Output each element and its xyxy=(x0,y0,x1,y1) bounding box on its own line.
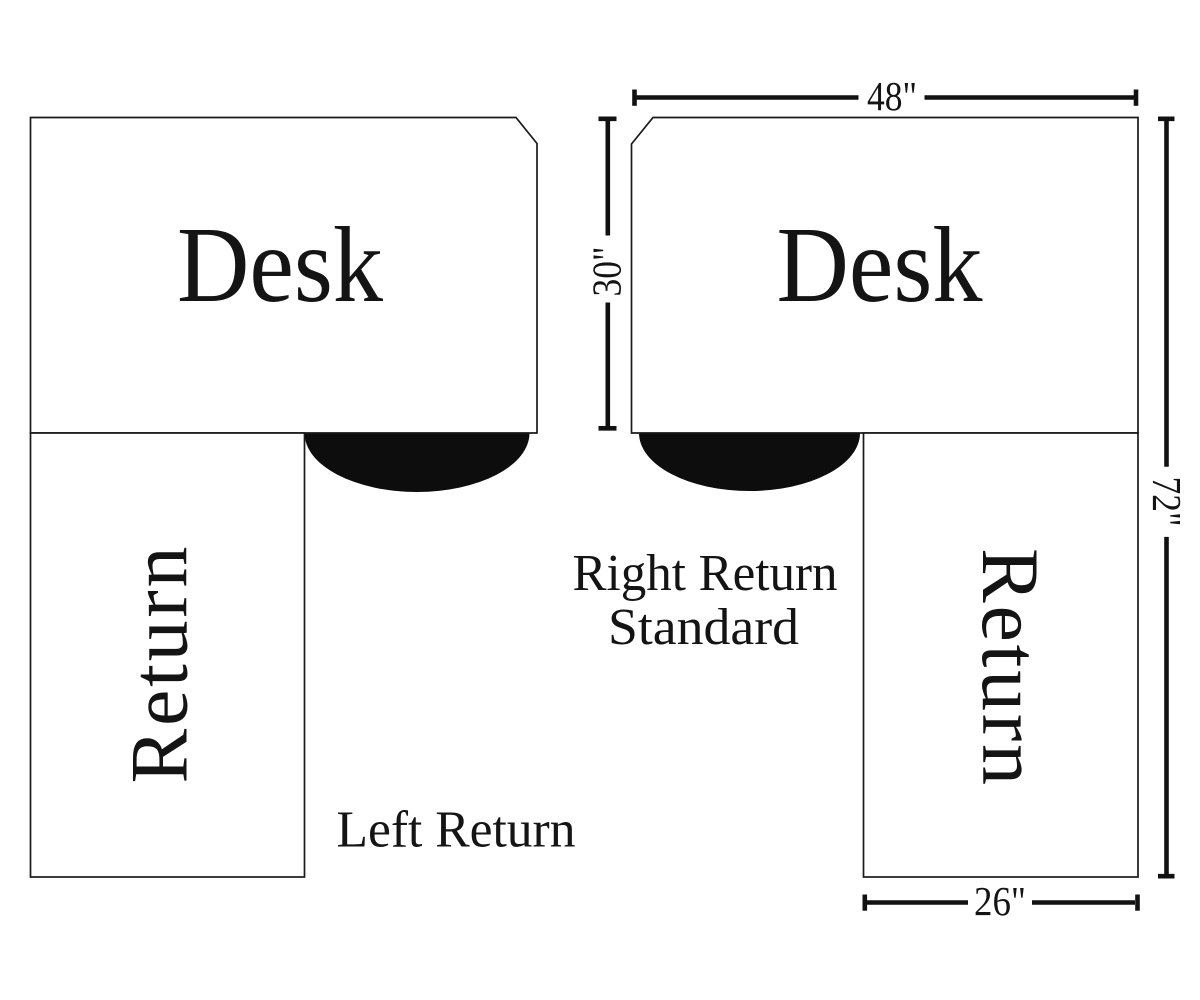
svg-text:26": 26" xyxy=(974,878,1026,924)
svg-text:Return: Return xyxy=(965,548,1056,785)
svg-text:Left Return: Left Return xyxy=(337,802,576,859)
svg-text:30": 30" xyxy=(584,247,630,297)
svg-text:Standard: Standard xyxy=(608,599,799,656)
svg-text:Desk: Desk xyxy=(777,206,983,325)
svg-text:Desk: Desk xyxy=(177,206,383,325)
svg-text:72": 72" xyxy=(1144,477,1190,527)
svg-text:Return: Return xyxy=(114,547,205,784)
svg-text:Right Return: Right Return xyxy=(573,545,838,602)
svg-text:48": 48" xyxy=(867,73,917,119)
